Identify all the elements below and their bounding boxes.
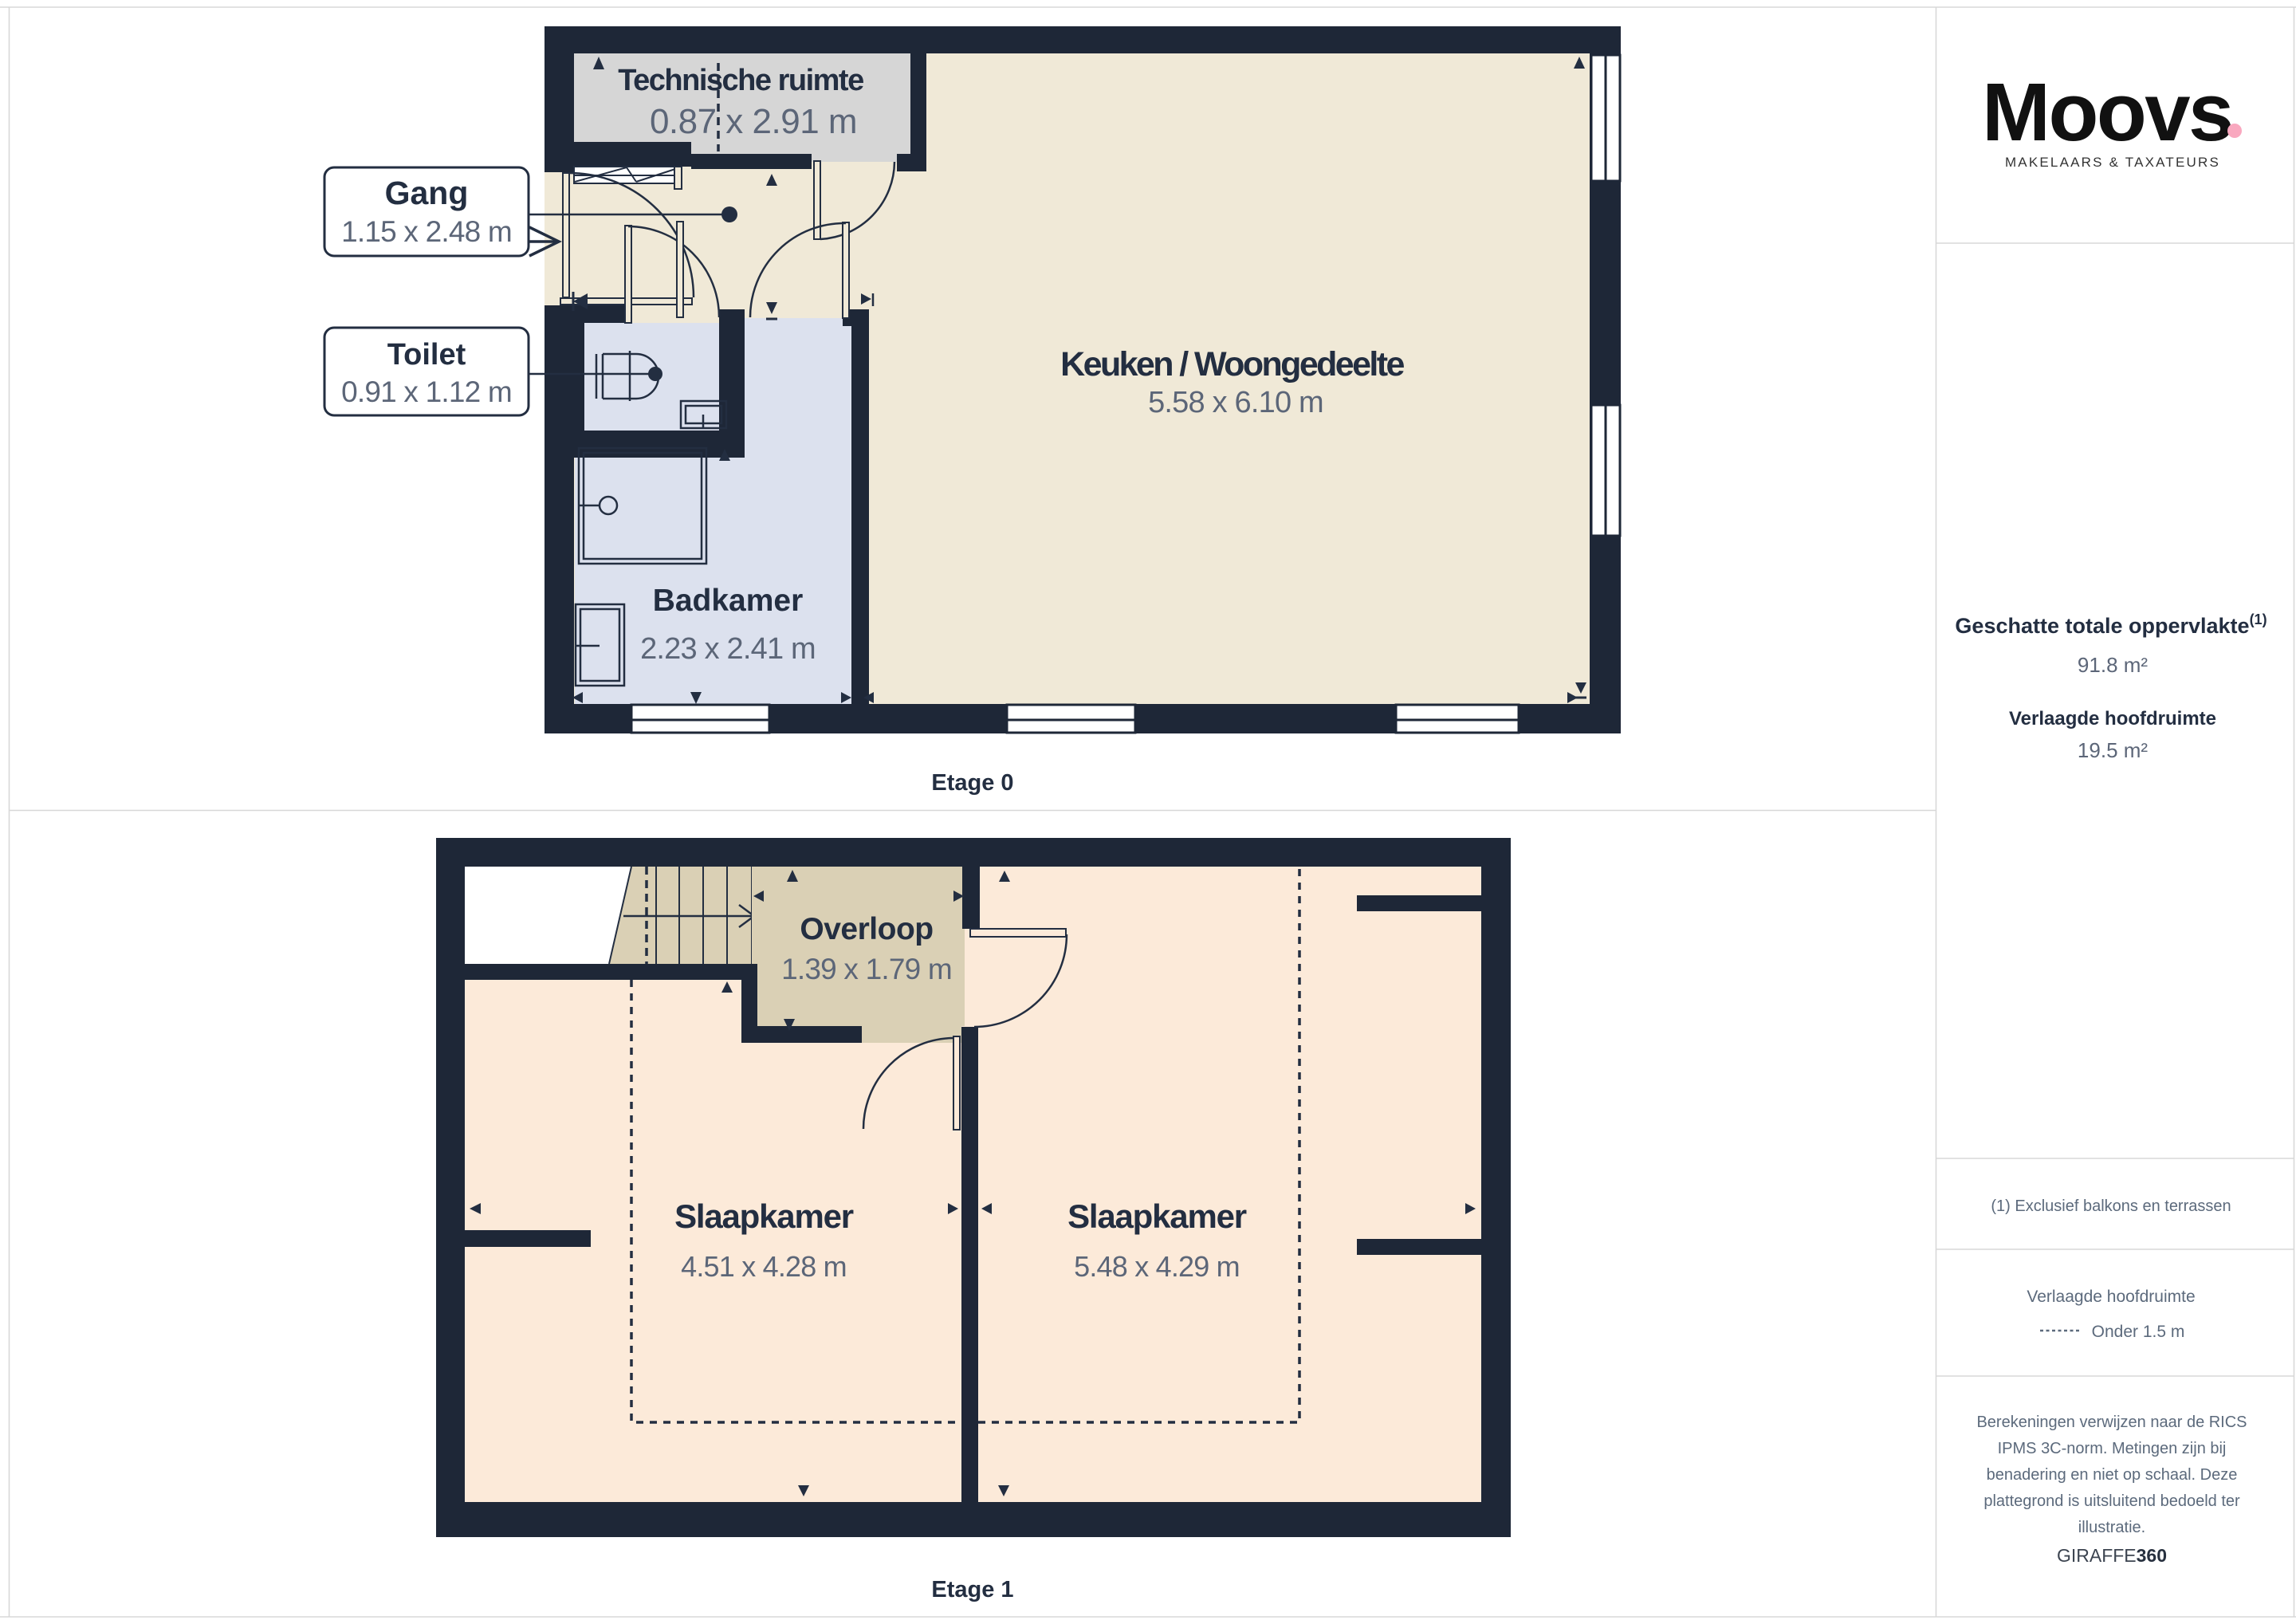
svg-text:GIRAFFE360: GIRAFFE360 bbox=[2057, 1545, 2167, 1566]
svg-text:Badkamer: Badkamer bbox=[653, 584, 804, 618]
svg-text:Verlaagde hoofdruimte: Verlaagde hoofdruimte bbox=[2009, 708, 2216, 729]
svg-text:Verlaagde hoofdruimte: Verlaagde hoofdruimte bbox=[2027, 1288, 2195, 1306]
svg-text:plattegrond is uitsluitend bed: plattegrond is uitsluitend bedoeld ter bbox=[1983, 1492, 2240, 1510]
svg-text:Onder 1.5 m: Onder 1.5 m bbox=[2092, 1323, 2185, 1341]
svg-text:5.58 x 6.10 m: 5.58 x 6.10 m bbox=[1148, 386, 1323, 419]
svg-text:91.8 m²: 91.8 m² bbox=[2078, 653, 2148, 677]
svg-text:Gang: Gang bbox=[385, 175, 469, 211]
svg-text:4.51 x 4.28 m: 4.51 x 4.28 m bbox=[681, 1250, 847, 1283]
svg-text:Moovs: Moovs bbox=[1982, 66, 2232, 158]
svg-text:5.48 x 4.29 m: 5.48 x 4.29 m bbox=[1074, 1250, 1240, 1283]
svg-text:Slaapkamer: Slaapkamer bbox=[1067, 1197, 1247, 1235]
svg-text:Berekeningen verwijzen naar de: Berekeningen verwijzen naar de RICS bbox=[1976, 1414, 2247, 1431]
svg-text:illustratie.: illustratie. bbox=[2078, 1519, 2145, 1536]
svg-text:IPMS 3C-norm. Metingen zijn bi: IPMS 3C-norm. Metingen zijn bij bbox=[1998, 1440, 2227, 1457]
svg-text:Slaapkamer: Slaapkamer bbox=[674, 1197, 854, 1235]
svg-text:1.15 x 2.48 m: 1.15 x 2.48 m bbox=[341, 215, 512, 248]
svg-text:(1) Exclusief balkons en terra: (1) Exclusief balkons en terrassen bbox=[1991, 1197, 2231, 1215]
svg-text:Etage 1: Etage 1 bbox=[931, 1577, 1013, 1602]
svg-text:Technische ruimte: Technische ruimte bbox=[618, 64, 863, 97]
svg-text:Keuken / Woongedeelte: Keuken / Woongedeelte bbox=[1060, 345, 1404, 383]
svg-text:0.87 x 2.91 m: 0.87 x 2.91 m bbox=[650, 102, 857, 141]
svg-text:MAKELAARS & TAXATEURS: MAKELAARS & TAXATEURS bbox=[2005, 155, 2220, 170]
svg-text:Toilet: Toilet bbox=[387, 338, 466, 372]
svg-text:Overloop: Overloop bbox=[800, 912, 933, 946]
svg-text:0.91 x 1.12 m: 0.91 x 1.12 m bbox=[341, 376, 512, 408]
svg-text:Etage 0: Etage 0 bbox=[931, 770, 1013, 796]
svg-text:Geschatte totale oppervlakte(1: Geschatte totale oppervlakte(1) bbox=[1955, 611, 2267, 638]
svg-text:1.39 x 1.79 m: 1.39 x 1.79 m bbox=[781, 953, 952, 985]
svg-text:19.5 m²: 19.5 m² bbox=[2078, 738, 2148, 762]
svg-text:benadering en niet op schaal.: benadering en niet op schaal. Deze bbox=[1987, 1466, 2238, 1484]
svg-text:2.23 x 2.41 m: 2.23 x 2.41 m bbox=[640, 632, 816, 666]
